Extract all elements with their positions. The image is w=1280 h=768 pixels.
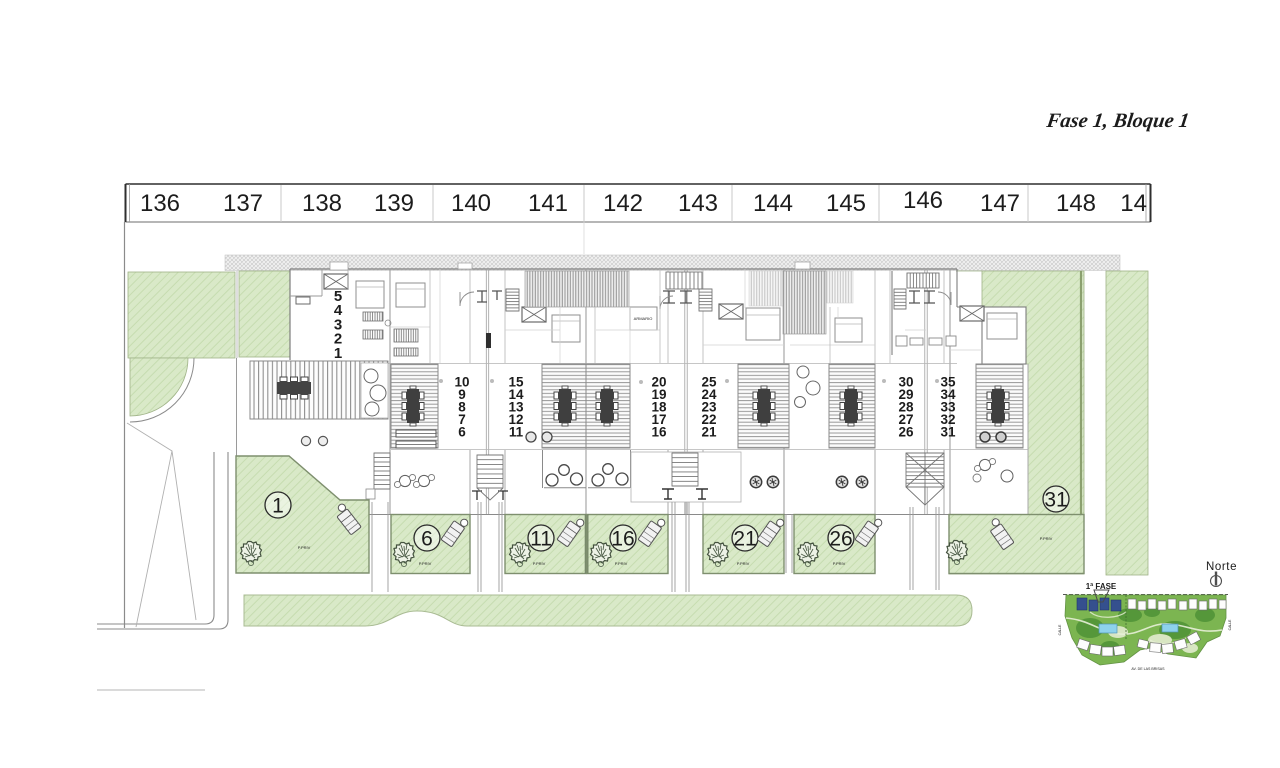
svg-text:6: 6 [421, 528, 433, 551]
svg-text:Norte: Norte [1206, 561, 1237, 573]
svg-text:16: 16 [611, 528, 634, 551]
svg-text:ARMARIO: ARMARIO [634, 316, 653, 321]
svg-text:1: 1 [334, 345, 342, 362]
svg-text:140: 140 [451, 190, 491, 217]
svg-text:31: 31 [940, 424, 956, 439]
svg-text:16: 16 [651, 424, 667, 439]
svg-text:142: 142 [603, 190, 643, 217]
svg-text:143: 143 [678, 190, 718, 217]
svg-text:148: 148 [1056, 190, 1096, 217]
svg-text:26: 26 [829, 528, 852, 551]
svg-text:146: 146 [903, 187, 943, 214]
svg-text:137: 137 [223, 190, 263, 217]
svg-text:6: 6 [458, 424, 466, 439]
svg-text:141: 141 [528, 190, 568, 217]
svg-text:147: 147 [980, 190, 1020, 217]
svg-text:Fase 1, Bloque 1: Fase 1, Bloque 1 [1044, 110, 1190, 132]
svg-text:P.PRIV: P.PRIV [533, 561, 546, 566]
svg-text:144: 144 [753, 190, 793, 217]
svg-text:11: 11 [509, 424, 524, 439]
svg-text:136: 136 [140, 190, 180, 217]
svg-text:138: 138 [302, 190, 342, 217]
svg-text:P.PRIV: P.PRIV [615, 561, 628, 566]
svg-text:CALLE: CALLE [1228, 619, 1232, 630]
svg-text:P.PRIV: P.PRIV [298, 545, 311, 550]
svg-text:21: 21 [701, 424, 717, 439]
svg-text:139: 139 [374, 190, 414, 217]
svg-text:21: 21 [733, 528, 756, 551]
svg-text:AV. DE LAS BRISAS: AV. DE LAS BRISAS [1131, 667, 1165, 671]
svg-text:31: 31 [1044, 489, 1067, 512]
svg-text:P.PRIV: P.PRIV [737, 561, 750, 566]
svg-text:P.PRIV: P.PRIV [833, 561, 846, 566]
svg-text:26: 26 [898, 424, 914, 439]
svg-text:P.PRIV: P.PRIV [1040, 536, 1053, 541]
svg-text:14: 14 [1120, 190, 1147, 217]
svg-text:145: 145 [826, 190, 866, 217]
svg-text:11: 11 [530, 528, 552, 551]
svg-text:1: 1 [272, 495, 284, 518]
svg-text:P.PRIV: P.PRIV [419, 561, 432, 566]
svg-text:CALLE: CALLE [1058, 624, 1062, 635]
